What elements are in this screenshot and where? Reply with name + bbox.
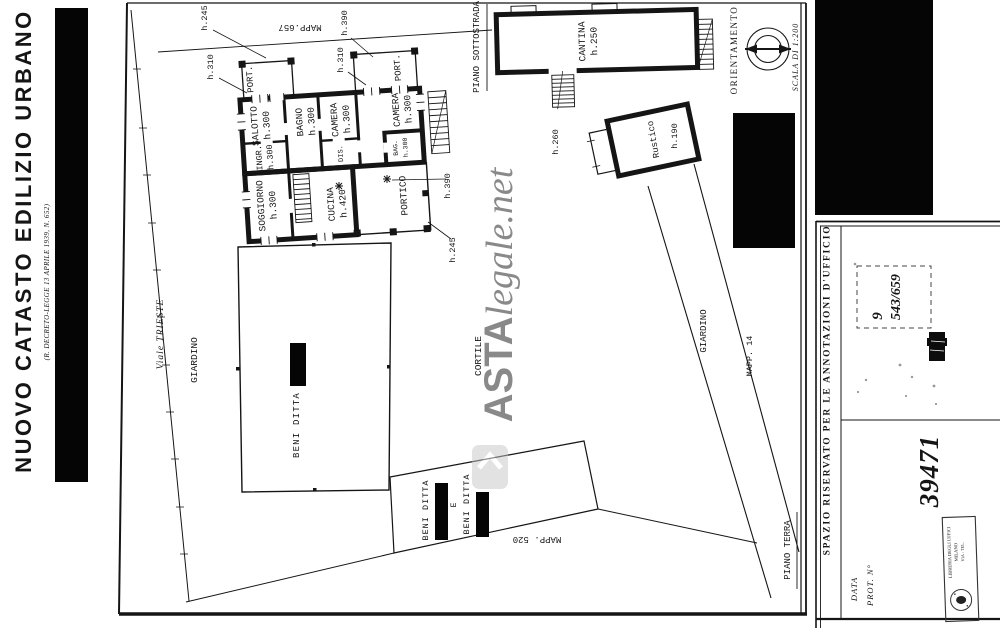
office-stamp-emblem-icon (950, 589, 972, 611)
redaction-bar-left (55, 8, 88, 482)
dim-h245-top: h.245 (200, 5, 210, 31)
dim-h245-lower: h.245 (448, 237, 458, 263)
stair-cantina-south (552, 71, 575, 110)
watermark: ASTAlegale.net (472, 166, 521, 489)
owner-label-3: BENI DITTA (462, 473, 472, 534)
area-label-giardino-right: GIARDINO (699, 309, 709, 352)
room-label-cantina: CANTINAh.250 (576, 21, 600, 62)
mapp520-label: MAPP. 520 (513, 534, 562, 544)
street-label: Viale TRIESTE (156, 299, 166, 370)
redaction-bar-owner-2 (435, 483, 448, 540)
redaction-bar-top-right (815, 0, 933, 215)
mapp14-label: MAPP. 14 (745, 336, 755, 377)
redaction-bar-owner-3 (476, 492, 489, 537)
cantina-building: CANTINAh.250 (496, 1, 715, 111)
handwritten-number-9: 9 (870, 312, 886, 320)
room-label-soggiorno: SOGGIORNOh.300 (254, 179, 280, 232)
scale-label: SCALA DI 1:200 (791, 23, 800, 92)
parcel-main (236, 243, 391, 492)
room-label-salotto: SALOTTOh.300 (248, 105, 274, 147)
orientation-label: ORIENTAMENTO (729, 6, 739, 95)
owner-conjunction: E (450, 502, 459, 507)
room-label-portico: PORTICO (397, 175, 411, 216)
office-panel-reserved-label: SPAZIO RISERVATO PER LE ANNOTAZIONI D'UF… (823, 225, 833, 556)
handwritten-fraction: 543/659 (889, 274, 904, 320)
dim-h390-lower: h.390 (443, 173, 453, 199)
dim-h390-top: h.390 (340, 10, 350, 36)
page-title: NUOVO CATASTO EDILIZIO URBANO (11, 9, 36, 473)
page-subtitle: (R. DECRETO-LEGGE 13 APRILE 1939, N. 652… (43, 203, 51, 360)
stair-cucina (293, 174, 312, 223)
cadastral-plan-scan: NUOVO CATASTO EDILIZIO URBANO (R. DECRET… (0, 0, 1000, 628)
office-panel-frame (816, 221, 1000, 628)
floor-label-terra: PIANO TERRA (783, 520, 793, 580)
watermark-text: ASTAlegale.net (477, 166, 521, 422)
field-label-prot: PROT. N° (865, 564, 875, 607)
office-stamp: LIBRERIA DEGLI UFFICI MILANO VIA - TEL. (942, 516, 979, 621)
room-label-cucina: CUCINAh.420 (325, 186, 350, 222)
floor-label-sottostrada: PIANO SOTTOSTRADA (472, 1, 482, 93)
compass-icon (745, 28, 791, 70)
room-label-camera1: CAMERAh.300 (328, 101, 353, 137)
room-label-ingresso: INGR.h.300 (254, 144, 277, 171)
field-label-data: DATA (849, 577, 859, 602)
room-label-bagno: BAGNOh.300 (294, 106, 319, 136)
office-stamp-line2: MILANO (953, 542, 959, 561)
redaction-bar-owner-1 (290, 343, 306, 386)
room-label-dis: DIS. (337, 145, 346, 162)
mapp657-label: MAPP.657 (278, 22, 321, 32)
dim-h310-left: h.310 (206, 54, 216, 80)
ground-floor-building: PORT. SALOTTOh.300 INGR.h.300 BAGNOh.300… (233, 46, 455, 246)
room-label-camera2: CAMERAh.300 (390, 91, 415, 127)
mapp657-boundary-line (158, 30, 492, 52)
owner-label-2: BENI DITTA (421, 479, 431, 540)
office-stamp-line1: LIBRERIA DEGLI UFFICI (946, 526, 953, 578)
stair-exterior (428, 91, 450, 154)
room-label-rustico: Rustico (646, 120, 662, 159)
owner-label-1: BENI DITTA (292, 392, 302, 458)
office-stamp-line3: VIA - TEL. (960, 542, 966, 562)
room-label-port-right: PORT. (392, 54, 404, 82)
dim-h190-rustico: h.190 (670, 123, 680, 149)
redaction-bar-plan-right (733, 113, 795, 248)
area-label-giardino-left: GIARDINO (189, 337, 200, 383)
dim-h260-rustico: h.260 (551, 129, 561, 155)
watermark-house-icon (472, 445, 508, 489)
room-label-bag: BAG.h.300 (392, 137, 410, 158)
dim-h310-right: h.310 (336, 47, 346, 73)
handwritten-protocol-number: 39471 (914, 435, 944, 509)
rustico-building (584, 104, 699, 181)
room-label-port-left: PORT. (245, 65, 257, 93)
